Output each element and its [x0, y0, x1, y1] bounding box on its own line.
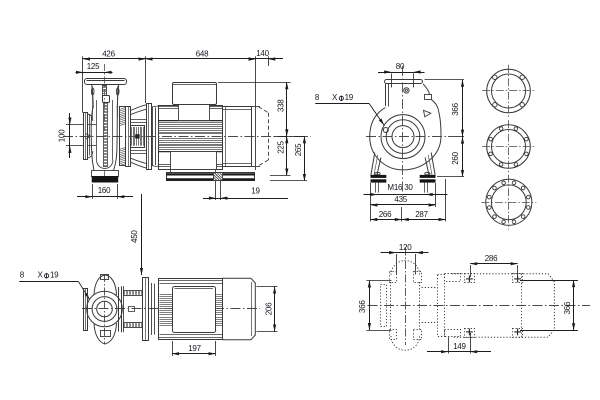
svg-text:125: 125 — [87, 62, 100, 71]
svg-text:366: 366 — [563, 301, 572, 314]
svg-text:225: 225 — [277, 140, 286, 153]
svg-text:286: 286 — [485, 254, 498, 263]
svg-text:206: 206 — [265, 302, 274, 315]
svg-text:19: 19 — [50, 271, 59, 280]
svg-text:19: 19 — [345, 93, 354, 102]
svg-text:265: 265 — [294, 143, 303, 156]
svg-text:19: 19 — [251, 187, 260, 196]
svg-text:260: 260 — [451, 151, 460, 164]
svg-text:338: 338 — [277, 99, 286, 112]
svg-text:M16 30: M16 30 — [387, 183, 413, 192]
svg-text:120: 120 — [399, 243, 412, 252]
svg-text:435: 435 — [394, 195, 407, 204]
svg-text:100: 100 — [58, 129, 67, 142]
svg-text:197: 197 — [188, 344, 201, 353]
svg-text:648: 648 — [196, 50, 209, 59]
svg-text:266: 266 — [379, 210, 392, 219]
svg-text:426: 426 — [102, 50, 115, 59]
svg-text:160: 160 — [98, 186, 111, 195]
svg-text:366: 366 — [451, 102, 460, 115]
svg-text:287: 287 — [415, 210, 428, 219]
svg-text:149: 149 — [453, 342, 466, 351]
svg-text:140: 140 — [256, 49, 269, 58]
svg-text:X: X — [332, 93, 338, 102]
svg-text:366: 366 — [358, 300, 367, 313]
svg-text:450: 450 — [130, 230, 139, 243]
svg-text:80: 80 — [396, 62, 405, 71]
